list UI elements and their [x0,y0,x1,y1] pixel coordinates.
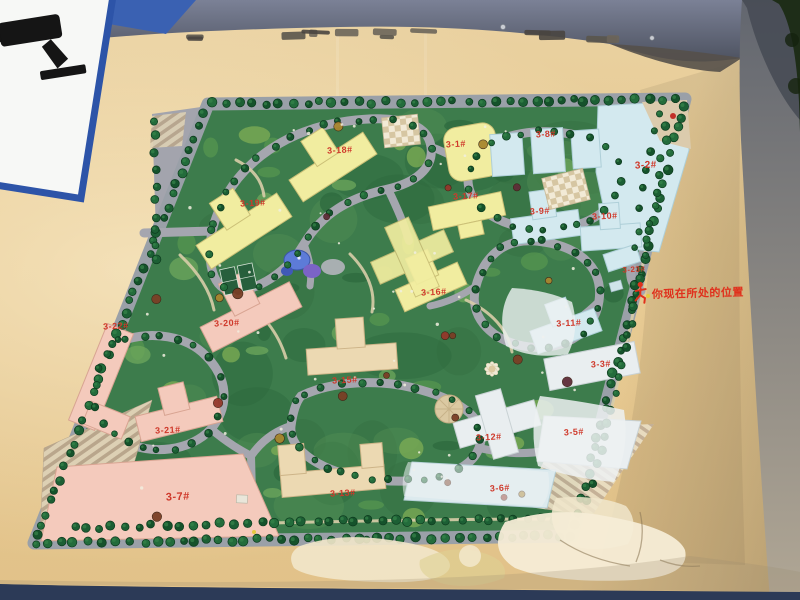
building-label-3-7#: 3-7# [166,490,191,503]
checker-plaza-top [382,114,421,148]
building-label-3-17#: 3-17# [453,190,479,201]
building-label-3-22#: 3-22# [103,320,129,331]
building-label-3-16#: 3-16# [421,286,447,297]
screw [501,25,506,30]
building-label-3-21#: 3-21# [155,424,181,435]
flower-plaza [484,361,499,376]
building-label-3-2#: 3-2# [635,159,658,171]
building-label-3-6#: 3-6# [490,482,511,493]
parking-top-left [150,112,186,148]
building-label-3-15#: 3-15# [332,374,358,385]
building-label-3-23#: 3-23# [622,264,645,274]
gate-marker-east [646,294,650,298]
gate-marker-south [252,530,256,534]
building-label-3-5#: 3-5# [564,426,585,437]
building-label-3-3#: 3-3# [591,358,612,369]
building-label-3-18#: 3-18# [327,144,353,155]
building-label-3-8#: 3-8# [536,128,557,139]
building-label-3-1#: 3-1# [446,138,467,149]
building-label-3-11#: 3-11# [556,317,582,328]
screw [650,36,654,40]
guard-booth-south [236,495,247,504]
building-label-3-10#: 3-10# [592,210,618,221]
small-plaza [321,259,345,275]
building-label-3-13#: 3-13# [330,487,356,498]
building-label-3-19#: 3-19# [240,197,266,208]
scene-svg: 3-1#3-2#3-3#3-5#3-6#3-7#3-8#3-9#3-10#3-1… [0,0,800,600]
building-label-3-9#: 3-9# [530,205,551,216]
building-label-3-12#: 3-12# [476,431,502,442]
building-label-3-20#: 3-20# [214,317,240,328]
photo-of-community-map-board: 3-1#3-2#3-3#3-5#3-6#3-7#3-8#3-9#3-10#3-1… [0,0,800,600]
red-plaza-dot [670,113,676,119]
